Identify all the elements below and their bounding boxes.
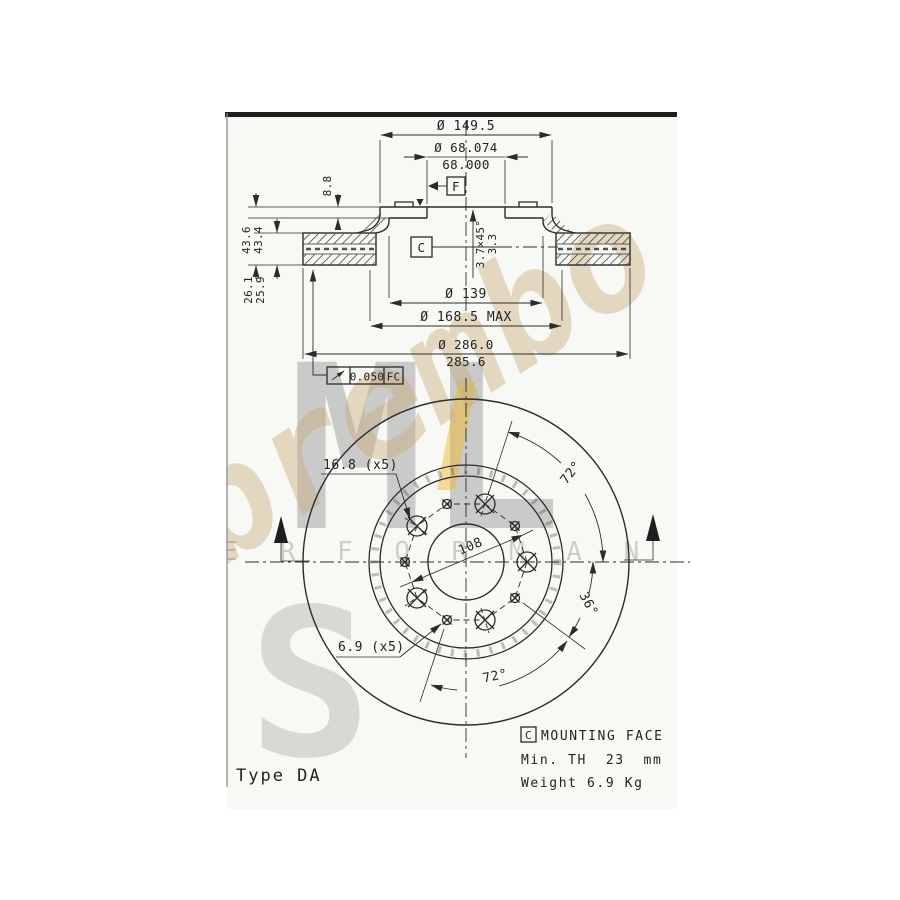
dim-disc-thickness-lower: 25.9 xyxy=(254,276,267,304)
top-border-bar xyxy=(225,112,677,117)
label-small-holes-text: 6.9 (x5) xyxy=(338,640,405,655)
dim-outer-diameter-lower: 285.6 xyxy=(446,354,486,369)
label-large-holes-text: 16.8 (x5) xyxy=(323,458,398,473)
dim-chamfer-lower: 3.3 xyxy=(486,234,499,255)
dim-center-bore-upper: Ø 68.074 xyxy=(434,140,497,155)
dim-bolt-circle-text: Ø 139 xyxy=(445,287,487,302)
datum-f-label: F xyxy=(452,179,460,194)
dim-hat-outer-diameter-text: Ø 149.5 xyxy=(437,119,495,134)
brake-disc-spec-sheet: S ML brembo. P E R F O R M A N C E xyxy=(0,0,900,900)
runout-value: 0.050 xyxy=(350,371,385,384)
dim-center-bore-lower: 68.000 xyxy=(442,157,490,172)
note-datum-letter: C xyxy=(525,729,532,742)
technical-drawing: S ML brembo. P E R F O R M A N C E xyxy=(0,0,900,900)
dim-hub-max-text: Ø 168.5 MAX xyxy=(420,310,512,325)
notes-block: C MOUNTING FACE Min. TH 23 mm Weight 6.9… xyxy=(521,727,664,791)
note-min-thickness: Min. TH 23 mm xyxy=(521,753,662,768)
type-label: Type DA xyxy=(236,766,322,786)
dim-outer-diameter-upper: Ø 286.0 xyxy=(438,337,493,352)
dim-overall-height-lower: 43.4 xyxy=(252,226,265,254)
dim-plate-thickness-text: 8.8 xyxy=(321,176,334,197)
note-mounting-face: MOUNTING FACE xyxy=(541,729,664,744)
runout-reference: FC xyxy=(387,371,401,384)
datum-c-label: C xyxy=(418,240,426,255)
note-weight: Weight 6.9 Kg xyxy=(521,776,644,791)
